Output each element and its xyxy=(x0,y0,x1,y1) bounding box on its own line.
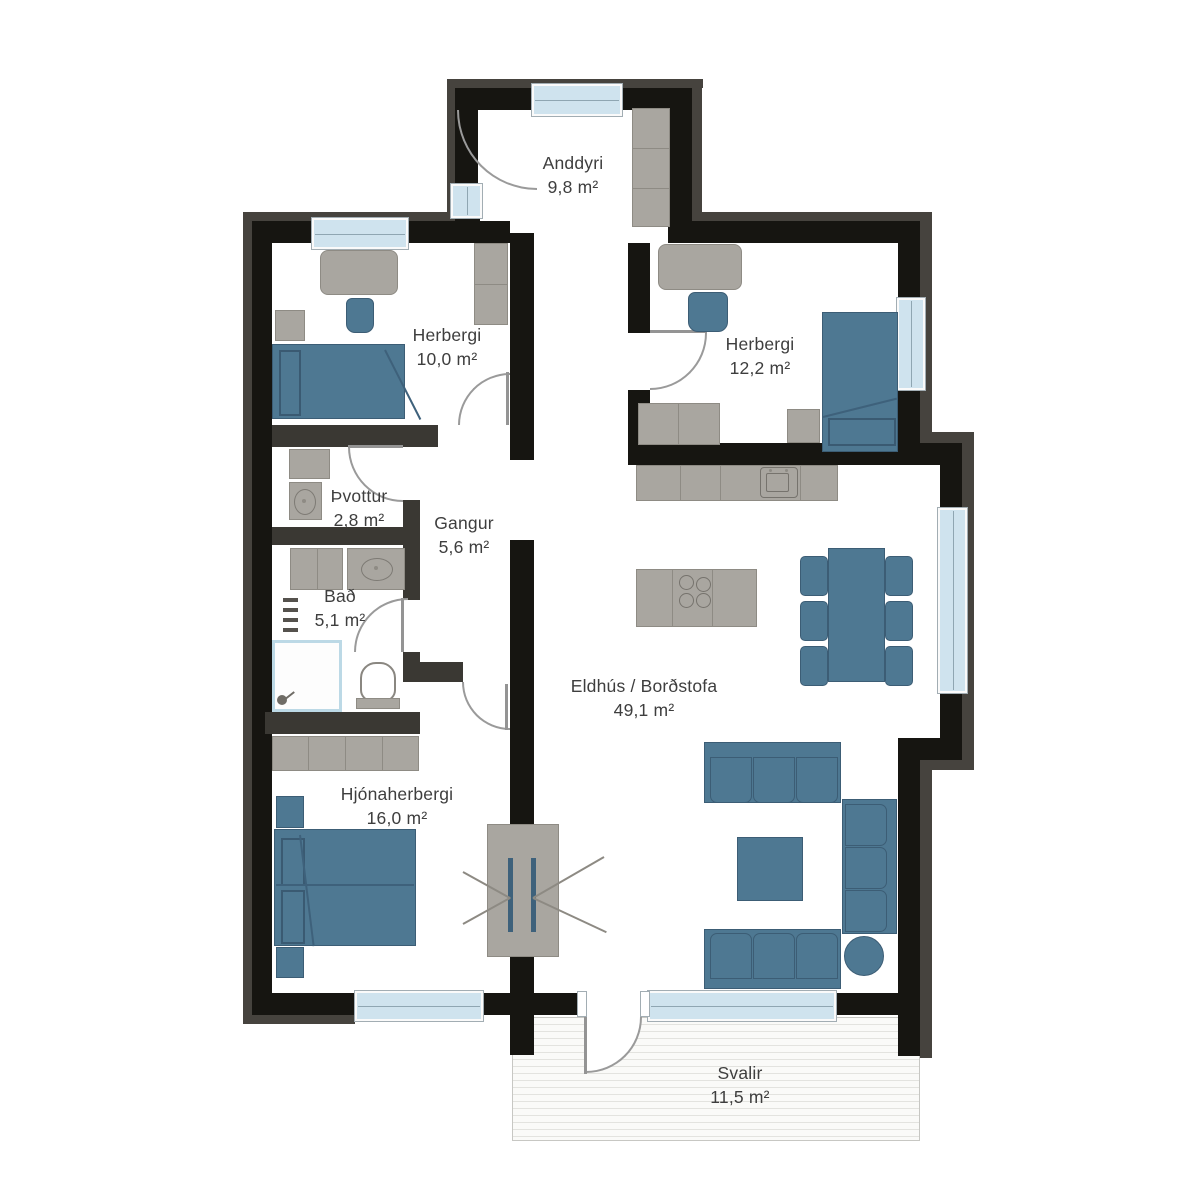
door-arc xyxy=(650,333,707,390)
room-label-hjonaherbergi: Hjónaherbergi 16,0 m² xyxy=(341,782,454,830)
closet-divider xyxy=(632,188,670,189)
door-leaf xyxy=(505,684,508,730)
sofa xyxy=(842,799,897,934)
wall-band xyxy=(920,760,932,1058)
wardrobe-divider xyxy=(308,736,309,771)
wall xyxy=(510,233,534,460)
washer-dot xyxy=(302,499,306,503)
burner-icon xyxy=(696,593,711,608)
wall xyxy=(265,712,420,734)
wall xyxy=(531,993,578,1015)
dining-chair xyxy=(885,601,913,641)
room-name: Anddyri xyxy=(543,151,604,175)
burner-icon xyxy=(679,575,694,590)
radiator-icon xyxy=(283,608,298,612)
window xyxy=(451,184,482,218)
wardrobe-divider xyxy=(345,736,346,771)
wall xyxy=(830,993,920,1015)
wall-band xyxy=(932,760,974,770)
kitchen-counter xyxy=(636,465,838,501)
wall xyxy=(252,993,360,1015)
dining-chair xyxy=(800,601,828,641)
desk-chair xyxy=(688,292,728,332)
laundry-cabinet xyxy=(289,449,330,479)
bed-pillow xyxy=(281,890,305,944)
wall xyxy=(510,1015,534,1055)
room-area: 11,5 m² xyxy=(710,1085,769,1109)
room-area: 5,6 m² xyxy=(434,535,494,559)
room-label-thvottur: Þvottur 2,8 m² xyxy=(331,484,388,532)
room-name: Gangur xyxy=(434,511,494,535)
island-divider xyxy=(672,569,673,627)
sink-dot xyxy=(374,566,378,570)
dining-table xyxy=(828,548,885,682)
dining-chair xyxy=(800,556,828,596)
window xyxy=(938,508,967,693)
room-area: 49,1 m² xyxy=(571,698,718,722)
counter-divider xyxy=(800,465,801,501)
wall xyxy=(668,88,692,228)
door-jamb xyxy=(578,992,586,1016)
wall xyxy=(252,221,272,1015)
wall xyxy=(898,738,920,1016)
wall xyxy=(403,500,420,527)
wall-band xyxy=(243,212,252,1024)
faucet-dot xyxy=(785,469,788,472)
door-jamb xyxy=(641,992,649,1016)
wall xyxy=(668,221,920,243)
closet-divider xyxy=(632,148,670,149)
door-leaf xyxy=(401,598,404,652)
cabinet xyxy=(638,403,720,445)
toilet-icon xyxy=(360,662,396,702)
room-label-bad: Bað 5,1 m² xyxy=(315,584,366,632)
cabinet-divider xyxy=(678,403,679,445)
room-label-gangur: Gangur 5,6 m² xyxy=(434,511,494,559)
room-name: Herbergi xyxy=(413,323,482,347)
nightstand xyxy=(275,310,305,341)
bed-pillow xyxy=(279,350,301,416)
wall xyxy=(403,662,463,682)
room-area: 2,8 m² xyxy=(331,508,388,532)
bed-seam xyxy=(276,884,414,886)
room-name: Herbergi xyxy=(726,332,795,356)
counter-divider xyxy=(680,465,681,501)
door-arc xyxy=(462,682,510,730)
window xyxy=(312,218,408,249)
wall xyxy=(272,425,438,447)
room-name: Eldhús / Borðstofa xyxy=(571,674,718,698)
wall xyxy=(898,386,920,445)
radiator-icon xyxy=(283,628,298,632)
room-name: Þvottur xyxy=(331,484,388,508)
wall xyxy=(898,1016,920,1056)
sliding-door-rail xyxy=(508,858,513,932)
room-area: 16,0 m² xyxy=(341,806,454,830)
room-name: Hjónaherbergi xyxy=(341,782,454,806)
room-area: 5,1 m² xyxy=(315,608,366,632)
floor-plan: Anddyri 9,8 m² Herbergi 10,0 m² Herbergi… xyxy=(0,0,1200,1200)
wall-band xyxy=(668,212,930,221)
toilet-tank xyxy=(356,698,400,709)
dining-chair xyxy=(885,646,913,686)
room-label-herbergi-10: Herbergi 10,0 m² xyxy=(413,323,482,371)
window xyxy=(648,991,836,1021)
dining-chair xyxy=(800,646,828,686)
burner-icon xyxy=(679,593,694,608)
wall xyxy=(940,465,962,508)
nightstand xyxy=(276,947,304,978)
room-area: 9,8 m² xyxy=(543,175,604,199)
coffee-table xyxy=(737,837,803,901)
desk-chair xyxy=(346,298,374,333)
sofa xyxy=(704,742,841,803)
window xyxy=(532,84,622,116)
wall xyxy=(403,545,420,600)
door-leaf xyxy=(584,1017,587,1074)
wall xyxy=(898,221,920,298)
wall xyxy=(628,243,650,333)
room-label-herbergi-12: Herbergi 12,2 m² xyxy=(726,332,795,380)
room-label-eldhus: Eldhús / Borðstofa 49,1 m² xyxy=(571,674,718,722)
wall xyxy=(628,443,962,465)
room-area: 12,2 m² xyxy=(726,356,795,380)
sink-basin xyxy=(766,473,789,492)
entry-closet xyxy=(632,108,670,227)
desk xyxy=(658,244,742,290)
sofa xyxy=(704,929,841,989)
wall-band xyxy=(243,1015,355,1024)
dining-chair xyxy=(885,556,913,596)
window xyxy=(897,298,925,390)
door-leaf xyxy=(348,445,403,448)
closet-divider xyxy=(474,284,508,285)
door-leaf xyxy=(506,372,509,425)
nightstand xyxy=(276,796,304,828)
bed-pillow xyxy=(828,418,896,446)
door-arc xyxy=(458,373,510,425)
counter-divider xyxy=(720,465,721,501)
island-divider xyxy=(712,569,713,627)
room-name: Bað xyxy=(315,584,366,608)
ottoman xyxy=(844,936,884,976)
wardrobe-divider xyxy=(382,736,383,771)
room-area: 10,0 m² xyxy=(413,347,482,371)
wall-band xyxy=(692,88,702,221)
room-label-anddyri: Anddyri 9,8 m² xyxy=(543,151,604,199)
radiator-icon xyxy=(283,618,298,622)
nightstand xyxy=(787,409,820,443)
wall xyxy=(940,689,962,740)
room-label-svalir: Svalir 11,5 m² xyxy=(710,1061,769,1109)
desk xyxy=(320,250,398,295)
window xyxy=(355,991,483,1021)
room-name: Svalir xyxy=(710,1061,769,1085)
radiator-icon xyxy=(283,598,298,602)
burner-icon xyxy=(696,577,711,592)
faucet-dot xyxy=(769,469,772,472)
